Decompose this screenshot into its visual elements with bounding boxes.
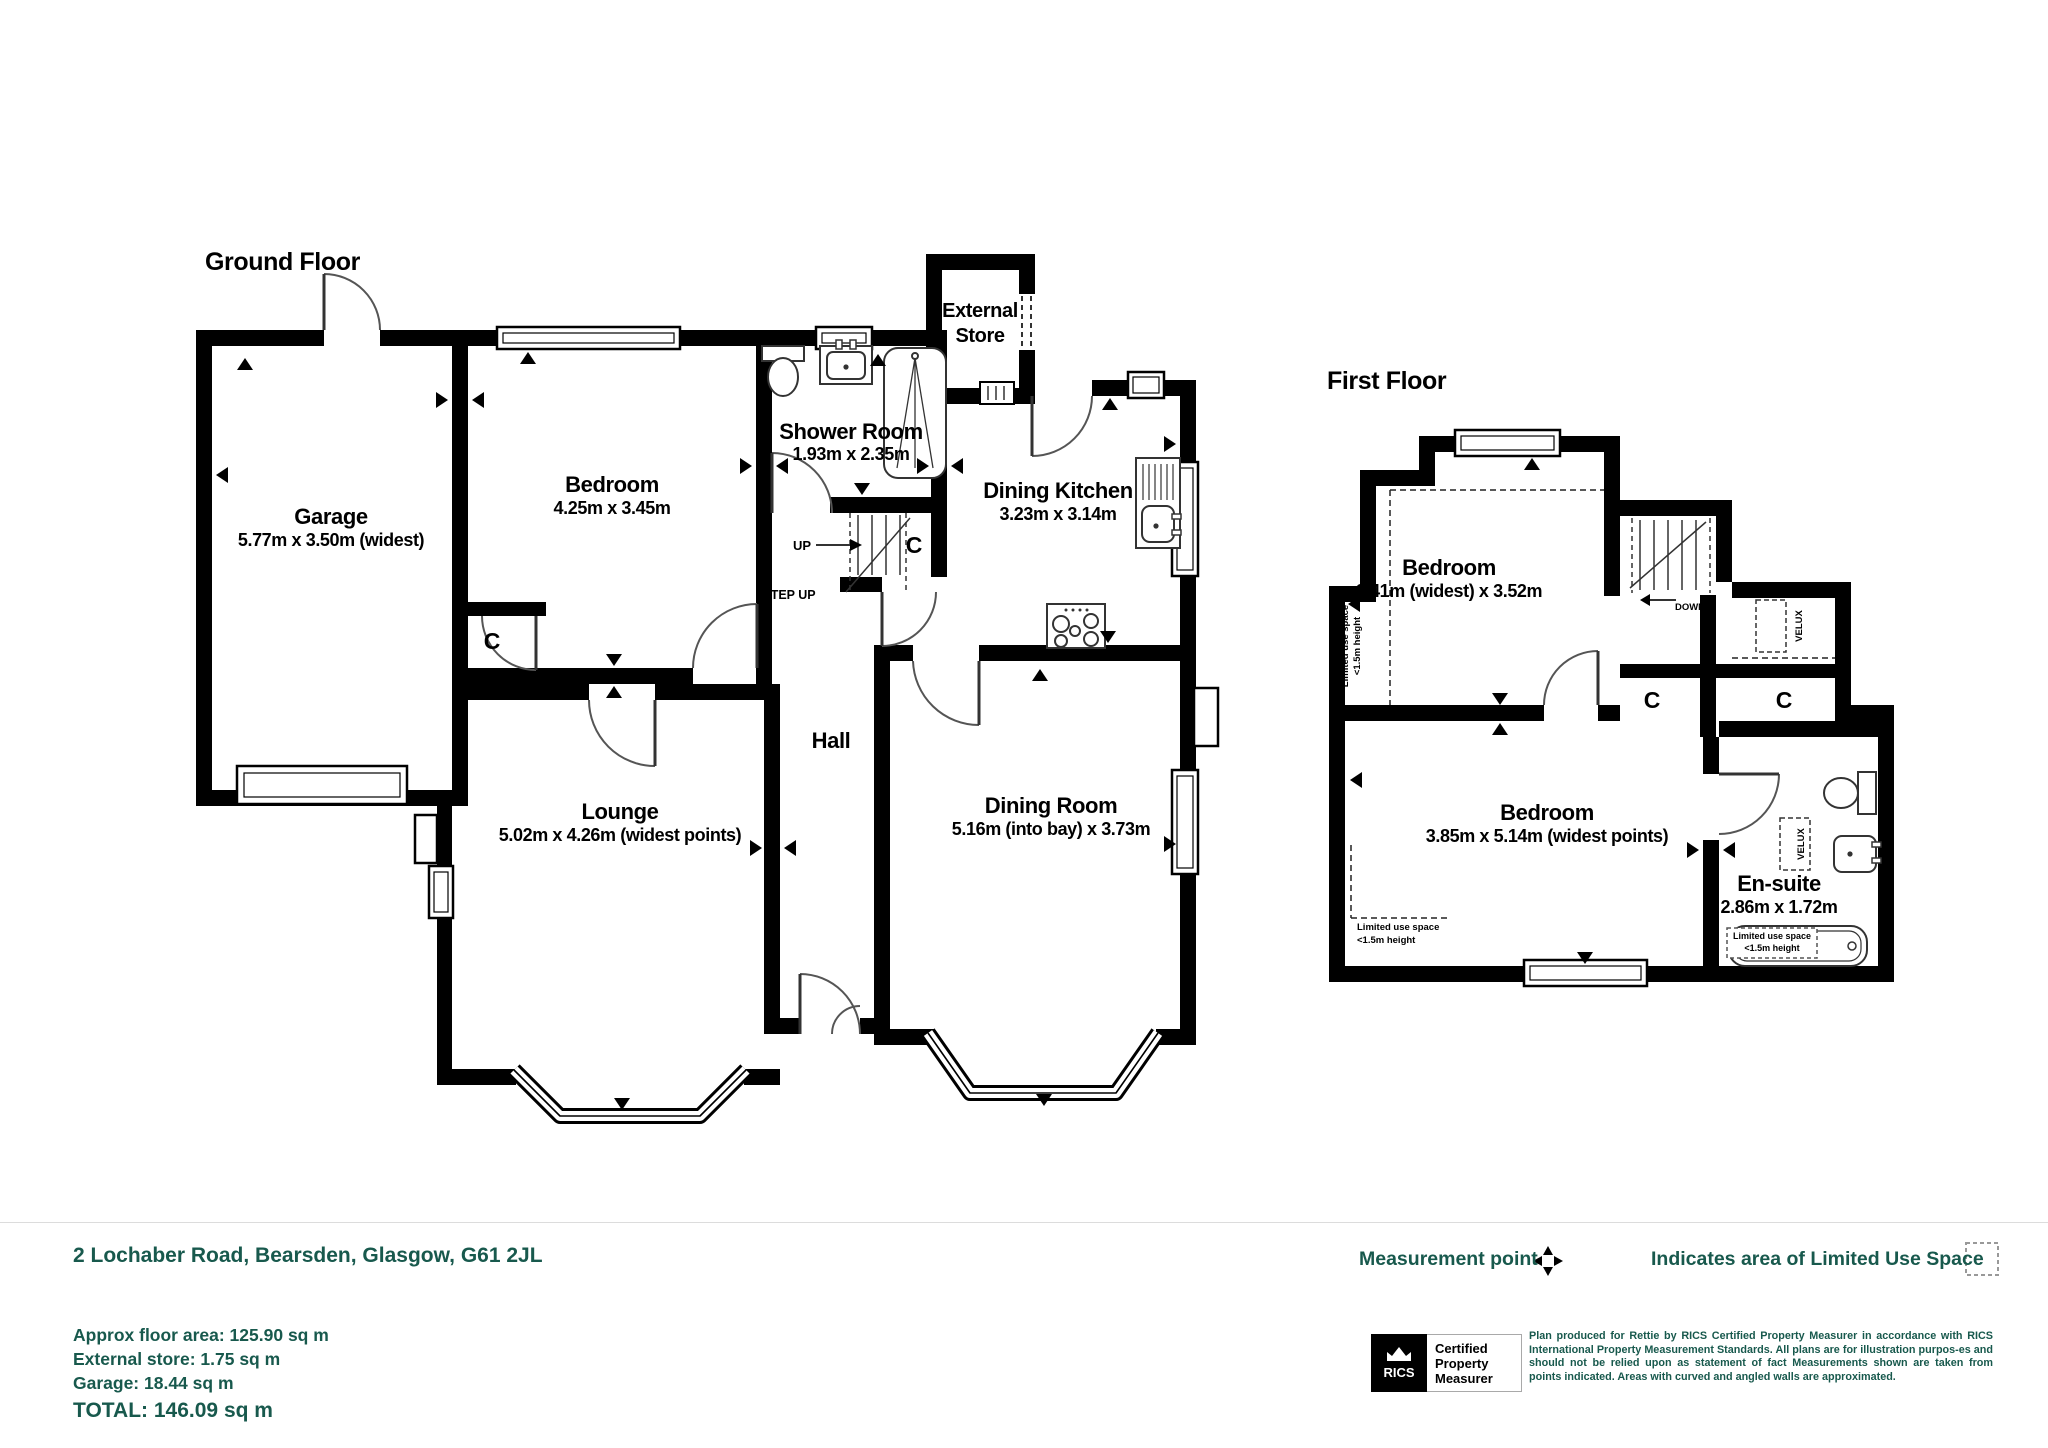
dining-room-name: Dining Room	[985, 793, 1117, 819]
external-store-name-2: Store	[955, 325, 1004, 348]
lounge-name: Lounge	[581, 799, 658, 825]
rear-bedroom-dims: 3.85m x 5.14m (widest points)	[1426, 826, 1668, 847]
total-area: TOTAL: 146.09 sq m	[73, 1399, 273, 1423]
measurement-arrows	[216, 352, 1176, 1110]
approx-floor-area: Approx floor area: 125.90 sq m	[73, 1325, 329, 1346]
limited-use-note: <1.5m height	[1357, 935, 1415, 946]
limited-use-note: Limited use space	[1733, 931, 1811, 941]
ground-floor-plan	[196, 254, 1218, 1116]
ensuite-name: En-suite	[1737, 871, 1821, 897]
shower-room-name: Shower Room	[779, 419, 923, 445]
garage-area: Garage: 18.44 sq m	[73, 1373, 234, 1394]
dining-room-dims: 5.16m (into bay) x 3.73m	[952, 819, 1150, 840]
ground-floor-title: Ground Floor	[205, 248, 360, 277]
walls	[196, 254, 1196, 1085]
bedroom-dims: 4.25m x 3.45m	[554, 498, 671, 519]
limited-use-note: <1.5m height	[1744, 943, 1799, 953]
lounge-dims: 5.02m x 4.26m (widest points)	[499, 825, 741, 846]
staircase-down	[1630, 518, 1710, 606]
rics-badge: RICS Certified Property Measurer	[1371, 1334, 1522, 1392]
toilet-icon	[1858, 772, 1876, 814]
velux-icon	[1756, 600, 1786, 652]
step-up-label: STEP UP	[762, 588, 815, 602]
property-address: 2 Lochaber Road, Bearsden, Glasgow, G61 …	[73, 1244, 543, 1268]
ensuite-dims: 2.86m x 1.72m	[1721, 897, 1838, 918]
cupboard-label: C	[1644, 687, 1661, 714]
floorplan-page: Ground Floor First Floor Garage 5.77m x …	[0, 0, 2048, 1448]
limited-use-legend-label: Indicates area of Limited Use Space	[1651, 1248, 1984, 1271]
garage-name: Garage	[294, 504, 367, 530]
footer-divider	[0, 1222, 2048, 1223]
limited-use-note: Limited use space	[1357, 922, 1439, 933]
measurement-point-label: Measurement point	[1359, 1248, 1538, 1271]
garage-dims: 5.77m x 3.50m (widest)	[238, 530, 424, 551]
bay-windows	[514, 1033, 1158, 1116]
first-bedroom-dims: 3.41m (widest) x 3.52m	[1356, 581, 1542, 602]
stairs-up-label: UP	[793, 538, 811, 553]
floorplan-drawing	[0, 0, 2048, 1448]
rics-crown-icon	[1386, 1347, 1412, 1362]
velux-label: VELUX	[1794, 610, 1806, 642]
stairs-down-label: DOWN	[1675, 602, 1705, 613]
limited-use-note-rotated: Limited use space <1.5m height	[1340, 605, 1364, 687]
cupboard-label: C	[1776, 687, 1793, 714]
rear-bedroom-name: Bedroom	[1500, 800, 1594, 826]
disclaimer-text: Plan produced for Rettie by RICS Certifi…	[1529, 1330, 1993, 1384]
rics-logo-icon: RICS	[1371, 1334, 1427, 1392]
hall-name: Hall	[812, 728, 851, 754]
bedroom-name: Bedroom	[565, 472, 659, 498]
sink-icon	[1834, 836, 1876, 872]
cupboard-label: C	[906, 532, 923, 559]
external-store-area: External store: 1.75 sq m	[73, 1349, 280, 1370]
first-bedroom-name: Bedroom	[1402, 555, 1496, 581]
dining-kitchen-dims: 3.23m x 3.14m	[1000, 504, 1117, 525]
shower-room-dims: 1.93m x 2.35m	[793, 444, 910, 465]
cupboard-label: C	[484, 628, 501, 655]
rics-text: Certified Property Measurer	[1427, 1334, 1522, 1392]
velux-label: VELUX	[1796, 828, 1808, 860]
first-floor-title: First Floor	[1327, 367, 1446, 396]
external-store-name-1: External	[942, 300, 1018, 323]
dining-kitchen-name: Dining Kitchen	[983, 478, 1133, 504]
rics-brand: RICS	[1383, 1365, 1414, 1380]
